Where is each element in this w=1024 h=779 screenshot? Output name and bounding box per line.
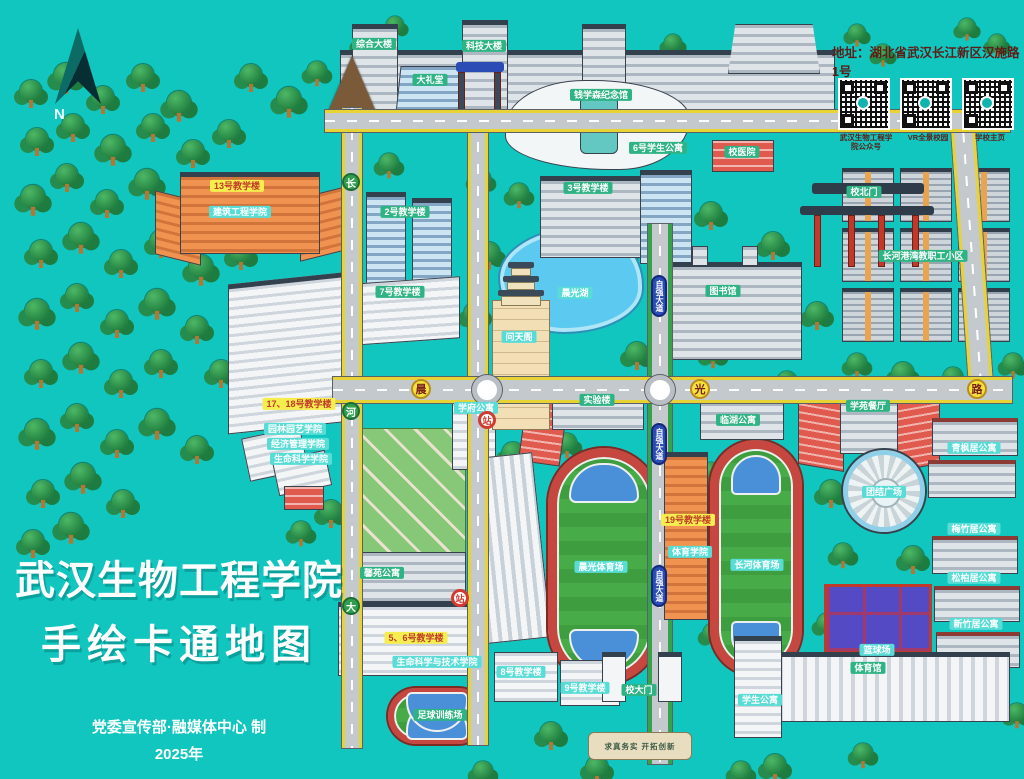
poi-jiaoxuelou-9: 9号教学楼 [560,682,609,694]
library-building [664,262,802,360]
qr-code-row: 武汉生物工程学院公众号VR全景校园学校主页 [838,78,1018,152]
poi-shengming-jishu: 生命科学与技术学院 [392,656,481,668]
housing-tower [900,288,952,342]
student-apartment-tower [734,636,782,738]
tree-icon [731,761,751,779]
tree-icon [150,350,172,372]
qr-code-icon [838,78,890,130]
tree-icon [764,754,786,776]
poi-linhu-gongyu: 临湖公寓 [716,414,760,426]
poi-jingguan-xueyuan: 经济管理学院 [267,438,329,450]
tree-icon [902,546,924,568]
road-badge-stop-1: 站 [478,411,496,429]
tree-icon [626,342,648,364]
title-block: 武汉生物工程学院 手绘卡通地图 党委宣传部·融媒体中心 制 2025年 [6,548,352,764]
poi-jiaoxuelou-19: 19号教学楼 [661,514,715,526]
poi-tuanjie-guangchang: 团结广场 [862,486,906,498]
campus-map: 求真务实 开拓创新 N 地址：湖北省武汉长江新区汉施路1号 武汉生物工程学院公众… [0,0,1024,779]
library-tower-left [692,246,708,266]
overpass-gate [456,62,504,72]
poi-tiyuguan: 体育馆 [850,662,885,674]
tree-icon [186,316,208,338]
poi-yuanlin-xueyuan: 园林园艺学院 [264,423,326,435]
poi-meizhuju: 梅竹居公寓 [947,523,1000,535]
tree-icon [848,24,866,42]
qr-label: 武汉生物工程学院公众号 [838,133,894,152]
tree-icon [132,64,154,86]
tree-icon [71,463,95,487]
tree-icon [25,299,49,323]
dorm-slab [934,586,1020,622]
overpass-pillar-right [494,72,501,112]
tree-icon [700,202,722,224]
poi-xiaoyiyuan: 校医院 [724,146,759,158]
north-gate-roof-mid [800,206,934,215]
qr-item-0: 武汉生物工程学院公众号 [838,78,894,152]
compass-arrow-icon [55,28,101,104]
tree-icon [112,490,134,512]
tree-icon [806,302,828,324]
tree-icon [69,343,93,367]
roundabout-west [472,375,502,405]
tree-icon [26,128,48,150]
roundabout-east [645,375,675,405]
map-credit: 党委宣传部·融媒体中心 制 [6,716,352,737]
arena-building [728,24,820,74]
poi-keji-tower: 科技大楼 [462,40,506,52]
map-year: 2025年 [6,743,352,764]
road-badge-he: 河 [342,402,360,420]
tree-icon [30,360,52,382]
poi-xiao-bei-men: 校北门 [846,186,881,198]
tree-icon [833,543,853,563]
poi-dalitang: 大礼堂 [412,74,447,86]
poi-xinyuan-gongyu: 馨苑公寓 [360,567,404,579]
dorm-slab [928,460,1016,498]
tree-icon [145,409,169,433]
tree-icon [473,761,493,779]
poi-shiyanlou: 实验楼 [579,394,614,406]
tree-icon [307,61,327,81]
map-title-line1: 武汉生物工程学院 [6,548,352,606]
red-pavilion [284,486,324,510]
road-badge-ziqiang-2: 自强大道 [651,423,667,465]
poi-xueyuan-canting: 学苑餐厅 [846,400,890,412]
tree-icon [106,430,128,452]
road-badge-ziqiang-3: 自强大道 [651,565,667,607]
tree-icon [277,87,301,111]
tree-icon [20,80,42,102]
poi-changhe-gangwan: 长河港湾教职工小区 [878,250,967,262]
poi-jiaoxuelou-17-18: 17、18号教学楼 [262,398,335,410]
poi-chenguang-stadium: 晨光体育场 [574,561,627,573]
tree-icon [25,419,49,443]
tree-icon [1003,353,1023,373]
dorm-slab [932,536,1018,574]
road-badge-ziqiang-1: 自强大道 [651,275,667,317]
north-gate-pillar-1 [814,215,821,267]
gate-motto-stone: 求真务实 开拓创新 [588,732,692,760]
tree-icon [96,190,118,212]
tree-icon [182,140,204,162]
qr-item-2: 学校主页 [962,78,1018,152]
tree-icon [56,164,78,186]
tree-icon [186,436,208,458]
mid-west-road [468,120,488,745]
poi-changhe-stadium: 长河体育场 [730,559,783,571]
tree-icon [66,284,88,306]
poi-xuesheng-gongyu-6: 6号学生公寓 [629,142,687,154]
hill [328,56,376,112]
qr-label: VR全景校园 [900,133,956,142]
tree-icon [509,183,529,203]
qr-code-icon [962,78,1014,130]
tree-icon [291,521,311,541]
tree-icon [167,91,191,115]
gymnasium-building [778,652,1010,722]
library-tower-right [742,246,758,266]
poi-jianzhu-xueyuan: 建筑工程学院 [209,206,271,218]
poi-tushuguan: 图书馆 [705,285,740,297]
tree-icon [66,404,88,426]
road-badge-lu: 路 [967,379,987,399]
tree-icon [106,310,128,332]
tree-icon [30,240,52,262]
road-badge-chang: 长 [342,173,360,191]
map-title-line2: 手绘卡通地图 [6,612,352,670]
tree-icon [762,232,784,254]
tree-icon [101,135,125,159]
poi-lanqiuchang: 篮球场 [859,644,894,656]
road-badge-guang: 光 [690,379,710,399]
botanical-garden [362,428,466,554]
tree-icon [240,64,262,86]
tree-icon [59,513,83,537]
tree-icon [69,223,93,247]
tree-icon [142,114,164,136]
poi-zonghe-tower: 综合大楼 [352,38,396,50]
poi-songbaiju: 松柏居公寓 [947,572,1000,584]
wentiange-pagoda [498,262,544,306]
north-gate-pillar-2 [848,215,855,267]
tree-icon [958,18,976,36]
poi-jiaoxuelou-3: 3号教学楼 [563,182,612,194]
wentiange-wall [492,300,550,430]
poi-jiaoxuelou-13: 13号教学楼 [210,180,264,192]
road-badge-stop-2: 站 [451,589,469,607]
canteen-west-wing [798,394,844,472]
tree-icon [847,353,867,373]
main-gate-pillar-right [658,652,682,702]
poi-jiaoxuelou-2: 2号教学楼 [380,206,429,218]
compass: N [48,28,108,120]
poi-zuqiu-xunlianchang: 足球训练场 [413,709,466,721]
address-text: 地址：湖北省武汉长江新区汉施路1号 [832,42,1022,80]
poi-xinzhuju: 新竹居公寓 [949,618,1002,630]
poi-jiaoxuelou-5-6: 5、6号教学楼 [384,632,447,644]
poi-shengming-xueyuan: 生命科学学院 [270,453,332,465]
qr-label: 学校主页 [962,133,1018,142]
tree-icon [820,480,842,502]
poi-qingfengju: 青枫居公寓 [947,442,1000,454]
compass-north-label: N [54,106,108,123]
overpass-pillar-left [458,72,465,112]
tree-icon [32,480,54,502]
poi-jiaoxuelou-7: 7号教学楼 [375,286,424,298]
teaching-building-17-18 [228,272,350,435]
poi-xuesheng-gongyu-r: 学生公寓 [738,694,782,706]
tree-icon [110,370,132,392]
tree-icon [853,743,873,763]
tree-icon [145,289,169,313]
poi-jiaoxuelou-8: 8号教学楼 [496,666,545,678]
housing-tower [842,288,894,342]
road-badge-chen: 晨 [411,379,431,399]
tree-icon [218,120,240,142]
tree-icon [21,185,45,209]
qr-code-icon [900,78,952,130]
poi-qianxuesen-hall: 钱学森纪念馆 [570,89,632,101]
poi-xiao-da-men: 校大门 [621,684,656,696]
tree-icon [540,722,562,744]
qr-item-1: VR全景校园 [900,78,956,152]
poi-wentiange: 问天阁 [501,331,536,343]
poi-chenguang-lake: 晨光湖 [557,287,592,299]
gate-motto-text: 求真务实 开拓创新 [604,741,675,752]
poi-tiyu-xueyuan: 体育学院 [668,546,712,558]
tree-icon [110,250,132,272]
teaching-building-19 [664,452,708,620]
tree-icon [379,153,399,173]
